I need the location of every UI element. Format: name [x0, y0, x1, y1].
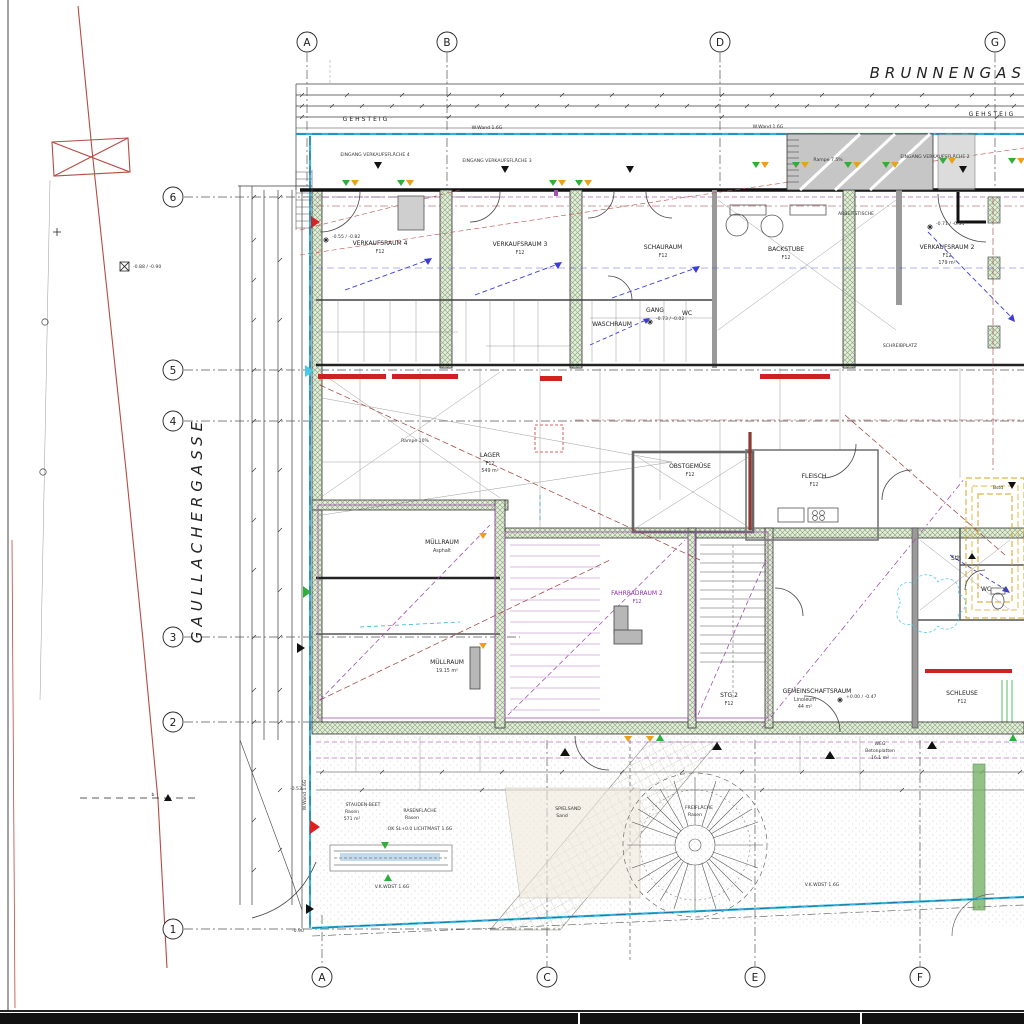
grid-top-b: B: [443, 37, 450, 49]
grid-left-6: 6: [170, 192, 177, 204]
room-schauraum-sub: F12: [659, 253, 668, 259]
room-fleisch-sub: F12: [810, 482, 819, 488]
rasenflaeche-sub: Rasen: [405, 815, 419, 821]
stauden-beet-area: 571 m²: [344, 816, 361, 822]
room-stg2: STG 2: [720, 692, 738, 699]
grid-top-g: G: [991, 37, 999, 49]
room-schauraum: SCHAURAUM: [644, 244, 683, 251]
room-gemeinschaftsraum-sub: Linoleum: [794, 697, 816, 703]
room-fahrradraum2-sub: F12: [633, 599, 642, 605]
room-verkaufsraum4: VERKAUFSRAUM 4: [353, 240, 408, 247]
floor-plan-canvas: A B D G 6 5 4 3 2 1 A C E F BRUNNENGASSE…: [0, 0, 1024, 1024]
room-wc-2: WC: [981, 586, 991, 593]
section-b-label: b: [152, 792, 155, 798]
spielsand: SPIELSAND: [555, 806, 581, 812]
room-stg2-sub: F12: [725, 701, 734, 707]
room-muellraum-2-sub: 19.15 m²: [436, 668, 458, 674]
room-schleuse-sub: F12: [958, 699, 967, 705]
entrance-4-label: EINGANG VERKAUFSFLÄCHE 4: [340, 151, 409, 158]
room-lager: LAGER: [480, 452, 500, 459]
level-7: -0.90: [292, 928, 304, 934]
level-1: -0.55 / -0.82: [332, 234, 360, 240]
room-backstube-sub: F12: [782, 255, 791, 261]
room-lager-area: 549 m²: [481, 468, 498, 474]
room-gang: GANG: [646, 307, 664, 314]
sidewalk-label-left: GEHSTEIG: [343, 116, 390, 123]
grid-left-4: 4: [170, 416, 177, 428]
room-verkaufsraum2: VERKAUFSRAUM 2: [920, 244, 975, 251]
room-arbeitstische: ARBEITSTISCHE: [838, 211, 874, 217]
room-schreibplatz: SCHREIBPLATZ: [883, 343, 917, 349]
freiflaeche: FREIFLÄCHE: [685, 804, 713, 811]
level-5: -0.88 / -0.90: [133, 264, 161, 270]
room-verkaufsraum3-sub: F12: [516, 250, 525, 256]
grid-left-3: 3: [170, 632, 177, 644]
level-3: -0.71 / -0.34: [936, 221, 964, 227]
wall-note-2: W.Wand 1.6G: [753, 124, 784, 130]
room-obstgemuese: OBSTGEMÜSE: [669, 463, 711, 470]
hedge-strip: [973, 764, 985, 910]
spielsand-sub: Sand: [556, 813, 568, 819]
room-obstgemuese-sub: F12: [686, 472, 695, 478]
room-lager-sub: F12: [486, 461, 495, 467]
grid-left-1: 1: [170, 924, 177, 936]
room-verkaufsraum2-sub: F12: [943, 253, 952, 259]
room-waschraum: WASCHRAUM: [592, 321, 632, 328]
weg-area: 16.1 m²: [871, 755, 889, 761]
grid-left-5: 5: [170, 365, 177, 377]
room-verkaufsraum4-sub: F12: [376, 249, 385, 255]
stauden-beet-sub: Rasen: [345, 809, 359, 815]
property-boundary: [12, 6, 167, 1008]
freiflaeche-sub: Rasen: [688, 812, 702, 818]
sidewalk-label-right: GEHSTEIG: [969, 111, 1016, 118]
weg-sub: Betonplatten: [865, 748, 895, 754]
grid-bottom-f: F: [917, 972, 923, 984]
street-left-lines: [238, 186, 316, 928]
wall-note-1: W.Wand 1.6G: [472, 125, 503, 131]
lichtmast-note: OK SL+0.0 LICHTMAST 1.6G: [388, 826, 453, 832]
grid-bottom-a: A: [318, 972, 326, 984]
grid-left-2: 2: [170, 717, 177, 729]
bestand-note: Bstd: [993, 485, 1003, 491]
weg: WEG: [874, 741, 885, 747]
site-note-1: V.K.WDST 1.6G: [375, 884, 410, 890]
room-wc-1: WC: [682, 310, 692, 317]
room-fleisch: FLEISCH: [802, 473, 827, 480]
room-verkaufsraum3: VERKAUFSRAUM 3: [493, 241, 548, 248]
entrance-3-label: EINGANG VERKAUFSFLÄCHE 3: [462, 157, 531, 164]
stauden-beet: STAUDEN-BEET: [345, 802, 380, 808]
room-muellraum-1: MÜLLRAUM: [425, 539, 459, 546]
ramp-75-label: Rampe 7.5%: [813, 157, 843, 163]
grid-top-d: D: [716, 37, 724, 49]
level-4: +0.00 / -0.47: [846, 694, 877, 700]
room-sth: Sth: [951, 555, 961, 562]
ramp-10-label: Rampe 10%: [401, 438, 429, 444]
level-6: -0.53: [290, 786, 302, 792]
planter-bed: [330, 845, 452, 871]
floor-plan-sheet: { "streets": { "top": "BRUNNENGASSE", "l…: [0, 0, 1024, 1024]
room-schleuse: SCHLEUSE: [946, 690, 978, 697]
street-name-top: BRUNNENGASSE: [870, 64, 1024, 82]
room-fahrradraum2: FAHRRADRAUM 2: [611, 590, 663, 597]
room-gemeinschaftsraum: GEMEINSCHAFTSRAUM: [783, 688, 852, 695]
wall-note-3: W.Wand 1.6G: [302, 779, 308, 810]
grid-bottom-e: E: [752, 972, 759, 984]
level-2: -0.73 / -0.02: [656, 316, 684, 322]
room-verkaufsraum2-area: 179 m²: [938, 260, 955, 266]
rasenflaeche: RASENFLÄCHE: [403, 807, 436, 814]
entrance-2-label: EINGANG VERKAUFSFLÄCHE 2: [900, 153, 969, 160]
grid-bottom-c: C: [543, 972, 550, 984]
site-note-2: V.K.WDST 1.6G: [805, 882, 840, 888]
room-muellraum-1-sub: Asphalt: [433, 548, 451, 554]
street-name-left: GAULLACHERGASSE: [188, 417, 206, 643]
grid-top-a: A: [303, 37, 311, 49]
room-backstube: BACKSTUBE: [768, 246, 804, 253]
room-muellraum-2: MÜLLRAUM: [430, 659, 464, 666]
room-gemeinschaftsraum-area: 44 m²: [798, 704, 812, 710]
